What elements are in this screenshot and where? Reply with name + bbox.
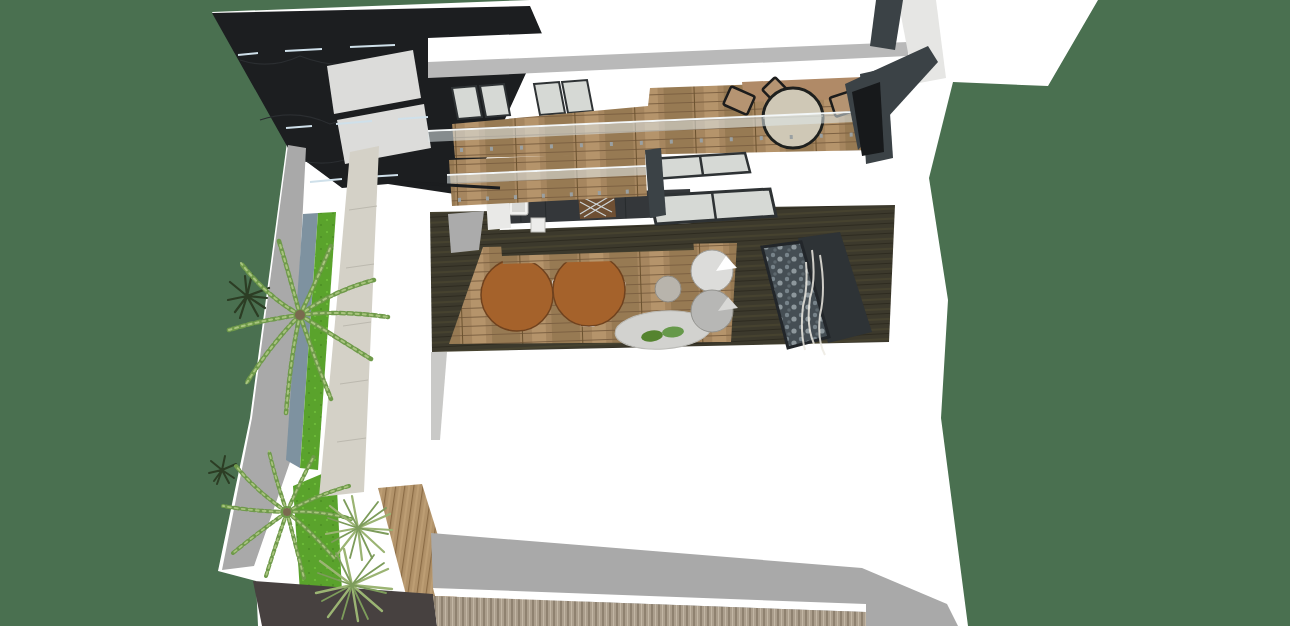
palm-trunk xyxy=(295,310,305,320)
window-pane xyxy=(480,84,510,117)
side-table xyxy=(655,276,681,302)
dishwasher xyxy=(531,218,545,232)
dining-table xyxy=(553,254,625,326)
egg-chair-shell xyxy=(691,290,733,332)
3d-viewport xyxy=(0,0,1290,626)
stair-wedge xyxy=(448,211,484,253)
window-pane xyxy=(452,86,482,119)
window-pane xyxy=(534,82,565,115)
dining-table xyxy=(481,259,553,331)
egg-chair-shell xyxy=(691,250,733,292)
window-pane xyxy=(562,80,593,113)
palm-trunk xyxy=(283,508,291,516)
